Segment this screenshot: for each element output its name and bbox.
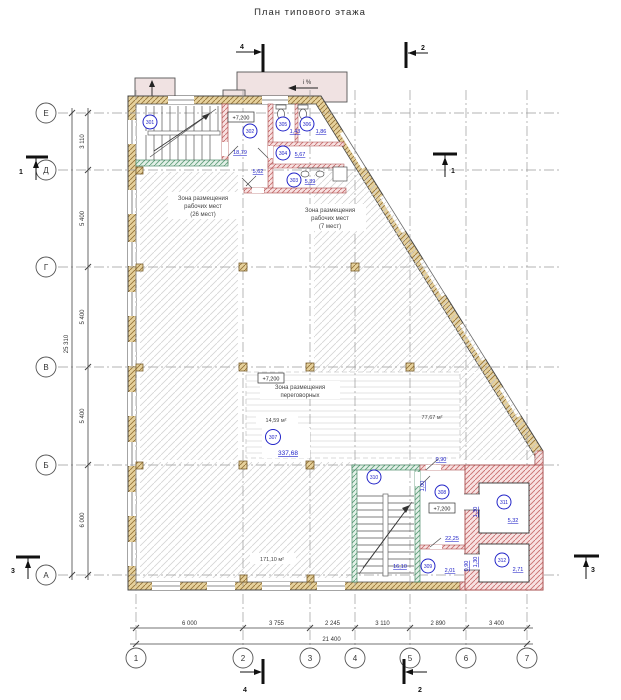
svg-text:Е: Е <box>43 109 48 118</box>
svg-text:2: 2 <box>421 45 425 52</box>
room-306-bubble: 306 <box>300 117 314 131</box>
room-307-area: 337,68 <box>278 450 298 457</box>
svg-text:переговорных: переговорных <box>280 393 319 399</box>
grid-bubble-row-G: Г <box>36 257 56 277</box>
svg-text:3 110: 3 110 <box>375 621 390 627</box>
grid-bubble-col-1: 1 <box>126 648 146 668</box>
dim-door-309: 0,90 <box>464 561 470 572</box>
svg-text:311: 311 <box>500 500 508 506</box>
grid-bubble-row-B: Б <box>36 455 56 475</box>
svg-text:304: 304 <box>279 151 288 157</box>
grid-bubble-col-2: 2 <box>233 648 253 668</box>
slope-label: i % <box>303 80 312 86</box>
svg-text:1: 1 <box>451 168 455 175</box>
dim-door-top: 0,90 <box>436 457 447 463</box>
room-310-bubble: 310 <box>367 470 381 484</box>
svg-text:301: 301 <box>146 120 155 126</box>
svg-text:307: 307 <box>269 435 278 441</box>
room-301-bubble: 301 <box>143 115 157 129</box>
svg-text:(7 мест): (7 мест) <box>319 224 341 230</box>
svg-text:2 245: 2 245 <box>325 621 341 627</box>
grid-bubble-col-6: 6 <box>456 648 476 668</box>
zone-meeting-label: Зона размещения <box>275 385 325 391</box>
svg-text:4: 4 <box>240 44 244 51</box>
level-marker-middle: +7,200 <box>263 377 280 383</box>
dim-left-total: 25 310 <box>64 334 70 353</box>
svg-text:306: 306 <box>303 122 312 128</box>
svg-text:рабочих мест: рабочих мест <box>184 204 222 210</box>
grid-bubble-col-7: 7 <box>517 648 537 668</box>
svg-text:(26 мест): (26 мест) <box>190 212 216 218</box>
room-307-bubble: 307 <box>266 430 281 445</box>
svg-text:3 755: 3 755 <box>269 621 285 627</box>
svg-text:3: 3 <box>591 567 595 574</box>
area-meeting-left: 14,59 м² <box>266 418 287 424</box>
svg-text:302: 302 <box>246 129 255 135</box>
hatch-work-zone-bottom <box>140 462 350 578</box>
room-308-bubble: 308 <box>435 485 449 499</box>
room-309-area: 2,01 <box>445 568 456 574</box>
svg-text:305: 305 <box>279 122 288 128</box>
shower-icon <box>333 167 347 181</box>
room-305-area: 1,43 <box>290 129 301 135</box>
dim-lift-2: 1,30 <box>473 557 479 568</box>
room-305-bubble: 305 <box>276 117 290 131</box>
svg-text:Г: Г <box>44 263 49 272</box>
room-309-bubble: 309 <box>421 559 435 573</box>
room-304-bubble: 304 <box>276 146 290 160</box>
svg-text:3: 3 <box>308 654 313 663</box>
level-marker-upper: +7,200 <box>233 116 250 122</box>
dim-bottom-total: 21 400 <box>322 637 341 643</box>
section-mark-3-right: 3 <box>574 556 599 579</box>
svg-text:4: 4 <box>353 654 358 663</box>
section-mark-2-top: 2 <box>406 42 428 68</box>
dim-stair-door: 1,00 <box>420 481 426 492</box>
svg-text:312: 312 <box>498 558 507 564</box>
svg-text:4: 4 <box>243 687 247 694</box>
room-312-bubble: 312 <box>495 553 509 567</box>
drawing-sheet: План типового этажа i % <box>0 0 621 700</box>
elevator-block <box>464 465 543 590</box>
section-mark-4-top: 4 <box>236 44 263 72</box>
svg-text:1: 1 <box>134 654 139 663</box>
section-mark-1-right: 1 <box>433 154 457 177</box>
svg-text:В: В <box>43 363 48 372</box>
room-306-area: 1,86 <box>316 129 327 135</box>
floor-plan-drawing: План типового этажа i % <box>0 0 621 700</box>
room-304-area: 5,67 <box>295 152 306 158</box>
svg-text:5 400: 5 400 <box>80 309 86 325</box>
sheet-title: План типового этажа <box>254 7 366 18</box>
svg-text:2 890: 2 890 <box>430 621 446 627</box>
svg-text:303: 303 <box>290 178 299 184</box>
room-302-area: 18,79 <box>233 150 247 156</box>
svg-text:3 110: 3 110 <box>80 134 86 149</box>
grid-bubble-row-A: А <box>36 565 56 585</box>
area-right-zone: 77,67 м² <box>422 415 443 421</box>
svg-text:Б: Б <box>43 461 48 470</box>
svg-text:5: 5 <box>408 654 413 663</box>
svg-text:Д: Д <box>43 166 49 175</box>
svg-text:5 400: 5 400 <box>80 408 86 424</box>
dim-lift-1: 1,30 <box>473 507 479 518</box>
svg-text:310: 310 <box>370 475 379 481</box>
room-310-area: 16,10 <box>393 564 407 570</box>
dimension-left: 3 110 5 400 5 400 5 400 6 000 25 310 <box>64 108 91 580</box>
room-311-bubble: 311 <box>497 495 511 509</box>
room-303-area: 5,39 <box>305 179 316 185</box>
grid-bubble-row-E: Е <box>36 103 56 123</box>
svg-text:7: 7 <box>525 654 530 663</box>
room-312-area: 2,71 <box>513 567 524 573</box>
zone-work26-label: Зона размещения <box>178 196 228 202</box>
room-308-area: 22,25 <box>445 536 459 542</box>
svg-text:6 000: 6 000 <box>80 512 86 528</box>
room-311-area: 5,32 <box>508 518 519 524</box>
room-303-bubble: 303 <box>287 173 301 187</box>
svg-text:3: 3 <box>11 568 15 575</box>
svg-text:А: А <box>43 571 49 580</box>
grid-bubble-col-4: 4 <box>345 648 365 668</box>
svg-text:2: 2 <box>418 687 422 694</box>
svg-text:1: 1 <box>19 169 23 176</box>
svg-text:рабочих мест: рабочих мест <box>311 216 349 222</box>
grid-bubble-row-D: Д <box>36 160 56 180</box>
zone-work7-label: Зона размещения <box>305 208 355 214</box>
level-marker-lower: +7,200 <box>434 507 451 513</box>
svg-text:309: 309 <box>424 564 433 570</box>
dimension-bottom: 6 000 3 755 2 245 3 110 2 890 3 400 21 4… <box>130 621 533 647</box>
svg-text:6 000: 6 000 <box>182 621 198 627</box>
corridor-area: 5,62 <box>253 169 264 175</box>
area-bottom-left: 171,10 м² <box>260 557 284 563</box>
svg-text:3 400: 3 400 <box>489 621 505 627</box>
svg-text:2: 2 <box>241 654 246 663</box>
svg-text:6: 6 <box>464 654 469 663</box>
svg-text:5 400: 5 400 <box>80 210 86 226</box>
room-302-bubble: 302 <box>243 124 257 138</box>
grid-bubble-col-3: 3 <box>300 648 320 668</box>
svg-text:308: 308 <box>438 490 447 496</box>
grid-bubble-row-V: В <box>36 357 56 377</box>
